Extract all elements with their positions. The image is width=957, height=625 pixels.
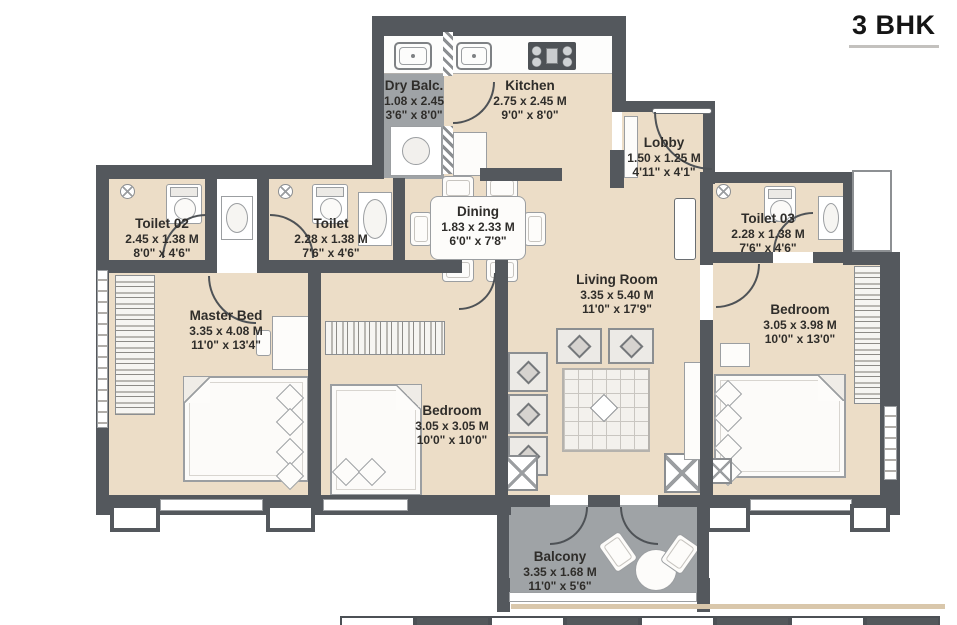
shower-icon: [716, 184, 731, 199]
room-name: Dry Balc.: [384, 78, 444, 94]
scale-segment: [490, 616, 565, 625]
window-icon: [160, 499, 263, 511]
scale-segment: [715, 616, 790, 625]
window-bay: [266, 504, 315, 532]
room-label-toilet: Toilet 2.28 x 1.38 M 7'6" x 4'6": [294, 216, 367, 260]
room-dim-metric: 3.35 x 1.68 M: [523, 565, 596, 579]
wardrobe: [325, 321, 445, 355]
washbasin-icon: [221, 196, 253, 240]
room-label-kitchen: Kitchen 2.75 x 2.45 M 9'0" x 8'0": [493, 78, 566, 122]
kitchen-sink-icon: [456, 42, 492, 70]
room-dim-imperial: 7'6" x 4'6": [731, 241, 804, 255]
wall-segment: [700, 320, 713, 498]
washing-machine-icon: [390, 126, 442, 176]
wall-segment: [588, 495, 620, 507]
room-dim-imperial: 4'11" x 4'1": [627, 165, 700, 179]
floor-plan: Dry Balc. 1.08 x 2.45 3'6" x 8'0" Kitche…: [0, 0, 957, 625]
window-icon: [884, 406, 897, 480]
room-name: Toilet: [294, 216, 367, 232]
door-leaf: [674, 198, 696, 260]
wall-segment: [96, 260, 217, 273]
scale-segment: [340, 616, 415, 625]
wardrobe: [115, 275, 155, 415]
wall-segment: [393, 260, 462, 273]
room-name: Master Bed: [189, 308, 262, 324]
room-dim-metric: 1.08 x 2.45: [384, 94, 444, 108]
room-label-living-room: Living Room 3.35 x 5.40 M 11'0" x 17'9": [576, 272, 658, 316]
sofa-seat: [508, 394, 548, 434]
room-dim-imperial: 11'0" x 17'9": [576, 302, 658, 316]
service-duct: [852, 170, 892, 252]
room-dim-metric: 3.05 x 3.05 M: [415, 419, 488, 433]
wall-segment: [495, 260, 508, 498]
wall-segment: [610, 150, 624, 188]
room-name: Dining: [441, 204, 514, 220]
window-icon: [323, 499, 408, 511]
nightstand: [720, 343, 750, 367]
scale-segment: [565, 616, 640, 625]
room-dim-metric: 2.28 x 1.38 M: [731, 227, 804, 241]
hatched-wall: [443, 126, 453, 174]
room-dim-metric: 1.83 x 2.33 M: [441, 220, 514, 234]
scale-segment: [415, 616, 490, 625]
room-name: Kitchen: [493, 78, 566, 94]
dining-chair: [410, 212, 432, 246]
room-name: Living Room: [576, 272, 658, 288]
room-name: Toilet 02: [125, 216, 198, 232]
room-dim-imperial: 7'6" x 4'6": [294, 246, 367, 260]
room-name: Toilet 03: [731, 211, 804, 227]
room-name: Bedroom: [763, 302, 836, 318]
plot-boundary-line: [511, 604, 945, 609]
room-dim-imperial: 10'0" x 10'0": [415, 433, 488, 447]
room-name: Balcony: [523, 549, 596, 565]
room-dim-metric: 3.05 x 3.98 M: [763, 318, 836, 332]
shower-icon: [278, 184, 293, 199]
page-title: 3 BHK: [849, 10, 939, 48]
wall-segment: [372, 16, 384, 179]
room-label-toilet-02: Toilet 02 2.45 x 1.38 M 8'0" x 4'6": [125, 216, 198, 260]
room-label-master-bed: Master Bed 3.35 x 4.08 M 11'0" x 13'4": [189, 308, 262, 352]
wall-segment: [372, 16, 626, 36]
dining-chair: [524, 212, 546, 246]
room-label-lobby: Lobby 1.50 x 1.25 M 4'11" x 4'1": [627, 135, 700, 179]
shower-icon: [120, 184, 135, 199]
room-label-bedroom-right: Bedroom 3.05 x 3.98 M 10'0" x 13'0": [763, 302, 836, 346]
wall-segment: [393, 178, 405, 273]
wall-segment: [507, 495, 550, 507]
scale-segment: [790, 616, 865, 625]
scale-bar: [340, 616, 940, 625]
wall-segment: [308, 273, 321, 498]
room-dim-imperial: 8'0" x 4'6": [125, 246, 198, 260]
stove-hob-icon: [528, 42, 576, 70]
room-label-bedroom-mid: Bedroom 3.05 x 3.05 M 10'0" x 10'0": [415, 403, 488, 447]
room-dim-imperial: 10'0" x 13'0": [763, 332, 836, 346]
room-dim-metric: 3.35 x 4.08 M: [189, 324, 262, 338]
room-label-balcony: Balcony 3.35 x 1.68 M 11'0" x 5'6": [523, 549, 596, 593]
hatched-wall: [443, 32, 453, 76]
wall-segment: [205, 178, 217, 260]
blanket-fold: [184, 377, 210, 403]
room-label-toilet-03: Toilet 03 2.28 x 1.38 M 7'6" x 4'6": [731, 211, 804, 255]
wall-segment: [480, 168, 562, 181]
scale-segment: [865, 616, 940, 625]
sofa-seat: [508, 352, 548, 392]
window-bay: [110, 504, 160, 532]
blanket-fold: [818, 375, 844, 401]
wall-segment: [612, 16, 626, 112]
window-icon: [750, 499, 852, 511]
balcony-railing: [509, 592, 697, 602]
room-dim-metric: 2.45 x 1.38 M: [125, 232, 198, 246]
tv-console: [684, 362, 701, 460]
room-dim-metric: 2.75 x 2.45 M: [493, 94, 566, 108]
room-label-dining: Dining 1.83 x 2.33 M 6'0" x 7'8": [441, 204, 514, 248]
washbasin-icon: [818, 196, 844, 240]
room-dim-imperial: 9'0" x 8'0": [493, 108, 566, 122]
dresser: [272, 316, 310, 370]
room-name: Lobby: [627, 135, 700, 151]
wall-segment: [497, 505, 509, 580]
wall-segment: [257, 260, 393, 273]
room-name: Bedroom: [415, 403, 488, 419]
room-dim-imperial: 11'0" x 5'6": [523, 579, 596, 593]
scale-segment: [640, 616, 715, 625]
room-dim-imperial: 11'0" x 13'4": [189, 338, 262, 352]
window-bay: [706, 504, 750, 532]
room-label-dry-balcony: Dry Balc. 1.08 x 2.45 3'6" x 8'0": [384, 78, 444, 122]
sofa-seat: [556, 328, 602, 364]
room-dim-imperial: 6'0" x 7'8": [441, 234, 514, 248]
window-icon: [97, 270, 108, 428]
room-dim-metric: 3.35 x 5.40 M: [576, 288, 658, 302]
room-dim-metric: 2.28 x 1.38 M: [294, 232, 367, 246]
wall-segment: [257, 178, 269, 260]
planter-icon: [506, 455, 538, 491]
window-bay: [850, 504, 890, 532]
room-dim-imperial: 3'6" x 8'0": [384, 108, 444, 122]
sofa-seat: [608, 328, 654, 364]
wall-segment: [658, 495, 699, 507]
kitchen-sink-icon: [394, 42, 432, 70]
room-dim-metric: 1.50 x 1.25 M: [627, 151, 700, 165]
wall-segment: [700, 172, 855, 183]
wall-segment: [96, 165, 384, 179]
